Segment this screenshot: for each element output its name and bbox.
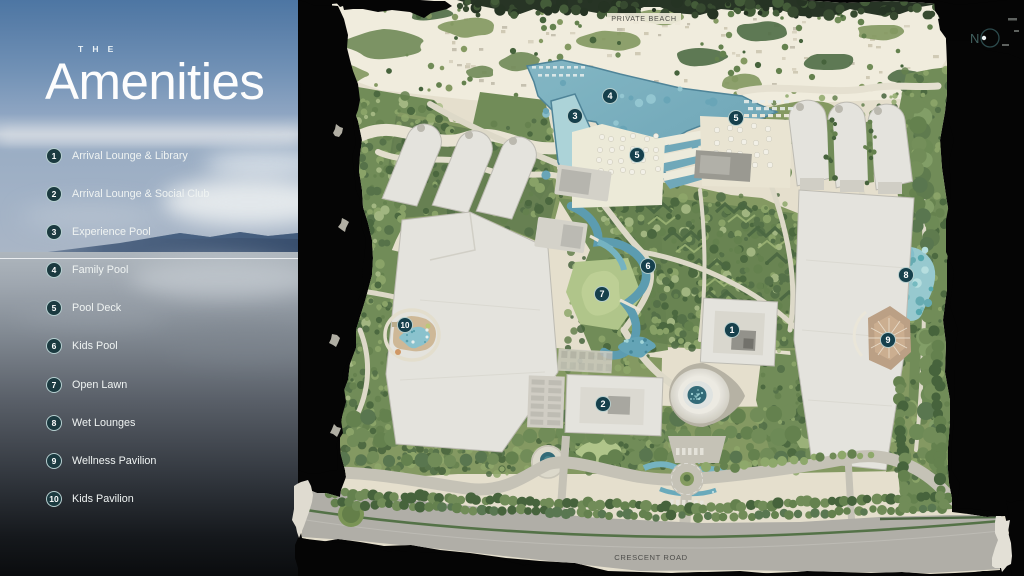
svg-text:3: 3 <box>572 111 577 121</box>
svg-text:10: 10 <box>401 321 410 330</box>
svg-text:PRIVATE BEACH: PRIVATE BEACH <box>611 14 677 23</box>
svg-text:5: 5 <box>634 150 639 160</box>
svg-text:4: 4 <box>607 91 612 101</box>
svg-text:8: 8 <box>903 270 908 280</box>
svg-text:2: 2 <box>600 399 605 409</box>
svg-text:N: N <box>970 31 979 46</box>
svg-text:1: 1 <box>729 325 734 335</box>
svg-text:5: 5 <box>733 113 738 123</box>
svg-text:6: 6 <box>645 261 650 271</box>
svg-text:9: 9 <box>885 335 890 345</box>
svg-text:7: 7 <box>599 289 604 299</box>
